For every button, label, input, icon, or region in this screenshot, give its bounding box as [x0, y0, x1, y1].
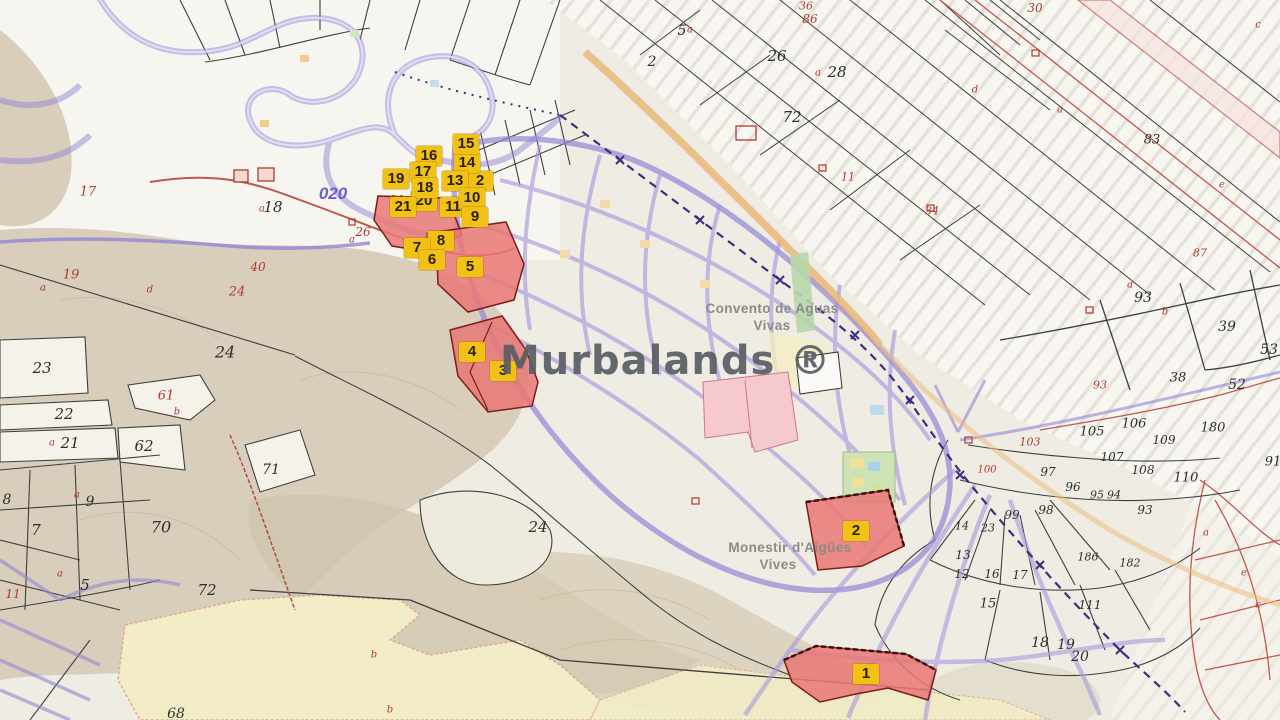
- place-label-convento-line2: Vivas: [753, 318, 790, 334]
- listing-marker-15[interactable]: 15: [453, 134, 479, 154]
- listing-marker-8[interactable]: 8: [428, 231, 454, 251]
- listing-marker-2[interactable]: 2: [843, 521, 869, 541]
- place-label-monestir-line1: Monestir d'Aigües: [728, 540, 851, 556]
- listing-marker-1[interactable]: 1: [853, 664, 879, 684]
- listing-marker-14[interactable]: 14: [454, 153, 480, 173]
- listing-marker-21[interactable]: 21: [390, 197, 416, 217]
- listing-marker-9[interactable]: 9: [462, 207, 488, 227]
- listing-marker-6[interactable]: 6: [419, 250, 445, 270]
- listing-marker-19[interactable]: 19: [383, 169, 409, 189]
- listing-marker-5[interactable]: 5: [457, 257, 483, 277]
- watermark: Murbalands ®: [500, 338, 831, 384]
- place-label-monestir-line2: Vives: [759, 557, 796, 573]
- place-label-convento-line1: Convento de Aguas: [705, 301, 838, 317]
- listing-marker-10[interactable]: 10: [459, 188, 485, 208]
- listing-marker-4[interactable]: 4: [459, 342, 485, 362]
- listing-marker-18[interactable]: 18: [412, 178, 438, 198]
- cadastral-map: 1823222162247189770572246825262872839339…: [0, 0, 1280, 720]
- road-code-label: 020: [319, 184, 347, 204]
